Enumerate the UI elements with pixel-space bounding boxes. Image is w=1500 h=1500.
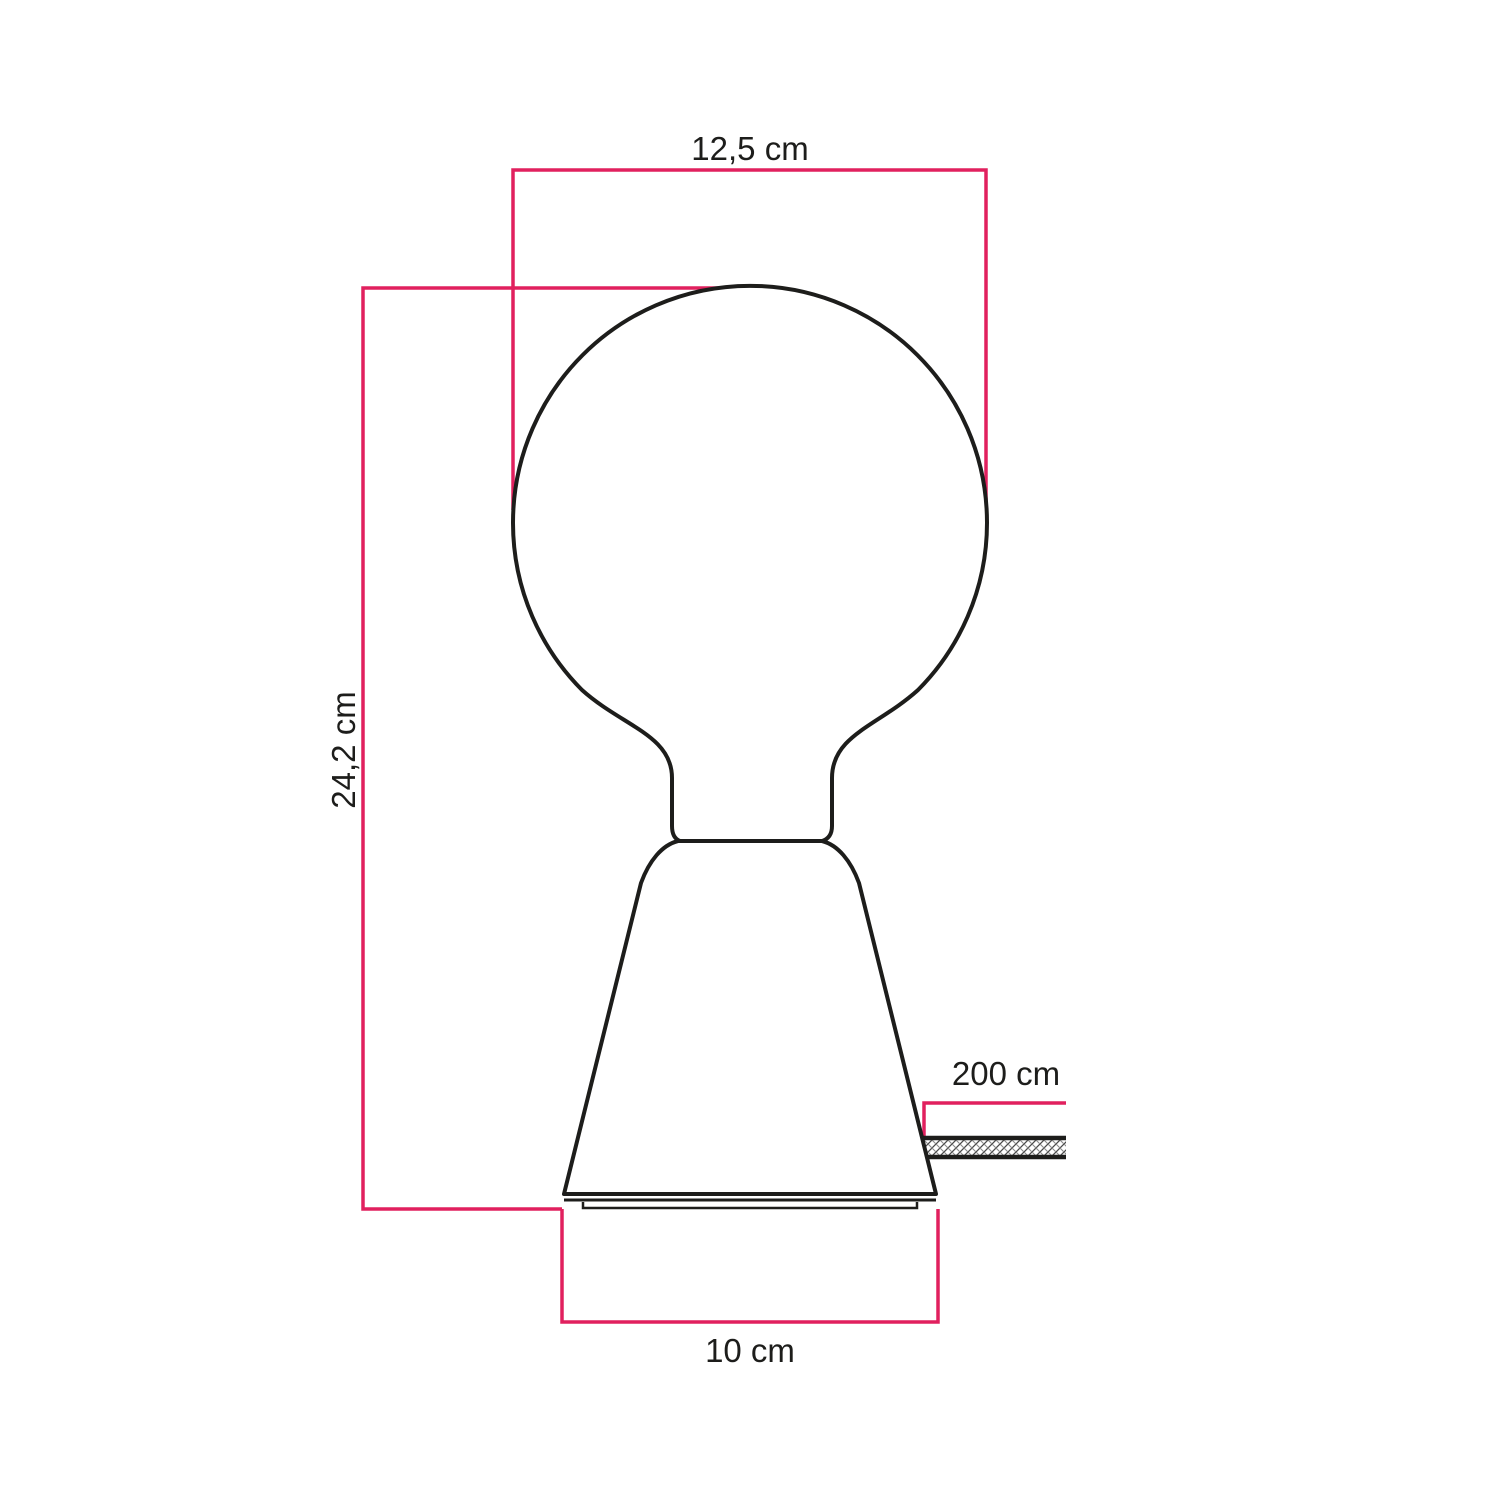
base-cone-outline (564, 841, 936, 1194)
cable-length-label: 200 cm (952, 1055, 1060, 1092)
dim-line-cable-length (924, 1103, 1066, 1136)
cable (921, 1138, 1066, 1157)
lamp-dimension-svg: 12,5 cm 24,2 cm 10 cm 200 cm (0, 0, 1500, 1500)
lamp-base (564, 841, 936, 1208)
bulb-diameter-label: 12,5 cm (691, 130, 808, 167)
total-height-label: 24,2 cm (325, 691, 362, 808)
dim-line-base-width (562, 1209, 938, 1322)
base-width-label: 10 cm (705, 1332, 795, 1369)
base-foot-plate (583, 1202, 917, 1208)
dimension-drawing: 12,5 cm 24,2 cm 10 cm 200 cm (0, 0, 1500, 1500)
bulb-outline (513, 286, 987, 841)
cable-braid-hatch (923, 1140, 1066, 1155)
